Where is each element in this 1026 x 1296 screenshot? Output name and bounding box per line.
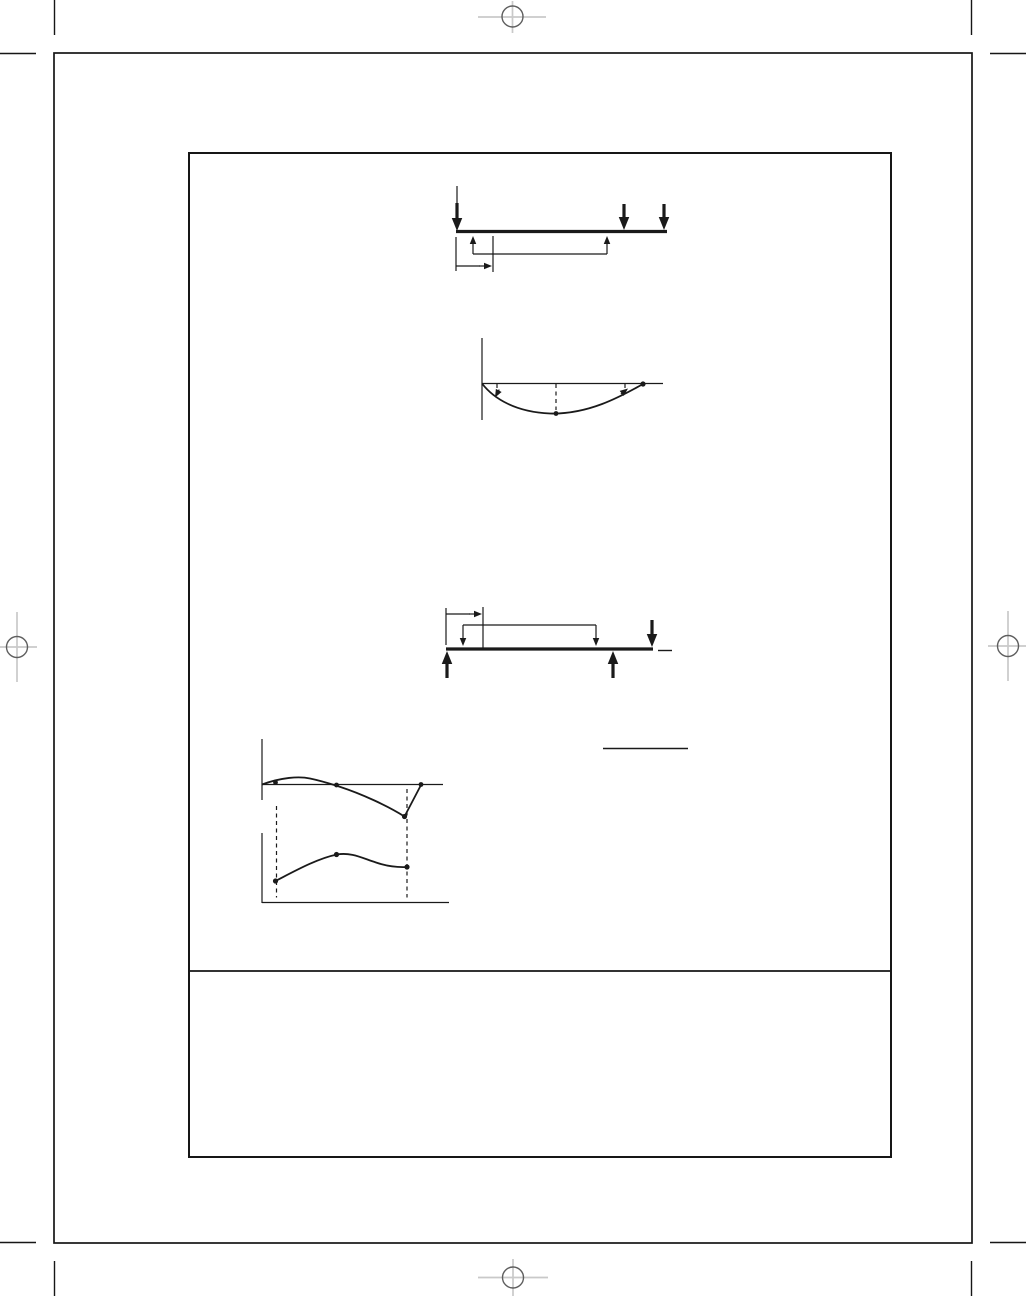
registration-mark-top — [478, 1, 546, 33]
figure-beam-point-loads — [452, 186, 670, 272]
content-box — [189, 153, 891, 1157]
document-page — [0, 0, 1026, 1296]
page-artwork — [0, 0, 1026, 1296]
registration-mark-left — [0, 612, 37, 682]
content-box-border — [189, 153, 891, 1157]
figure-overhang-deflection-curve — [262, 833, 449, 903]
registration-mark-right — [988, 611, 1026, 681]
figures — [262, 186, 688, 903]
figure-beam-overhang — [442, 607, 672, 678]
figure-moment-curve — [482, 338, 663, 420]
registration-mark-bottom — [478, 1259, 548, 1296]
